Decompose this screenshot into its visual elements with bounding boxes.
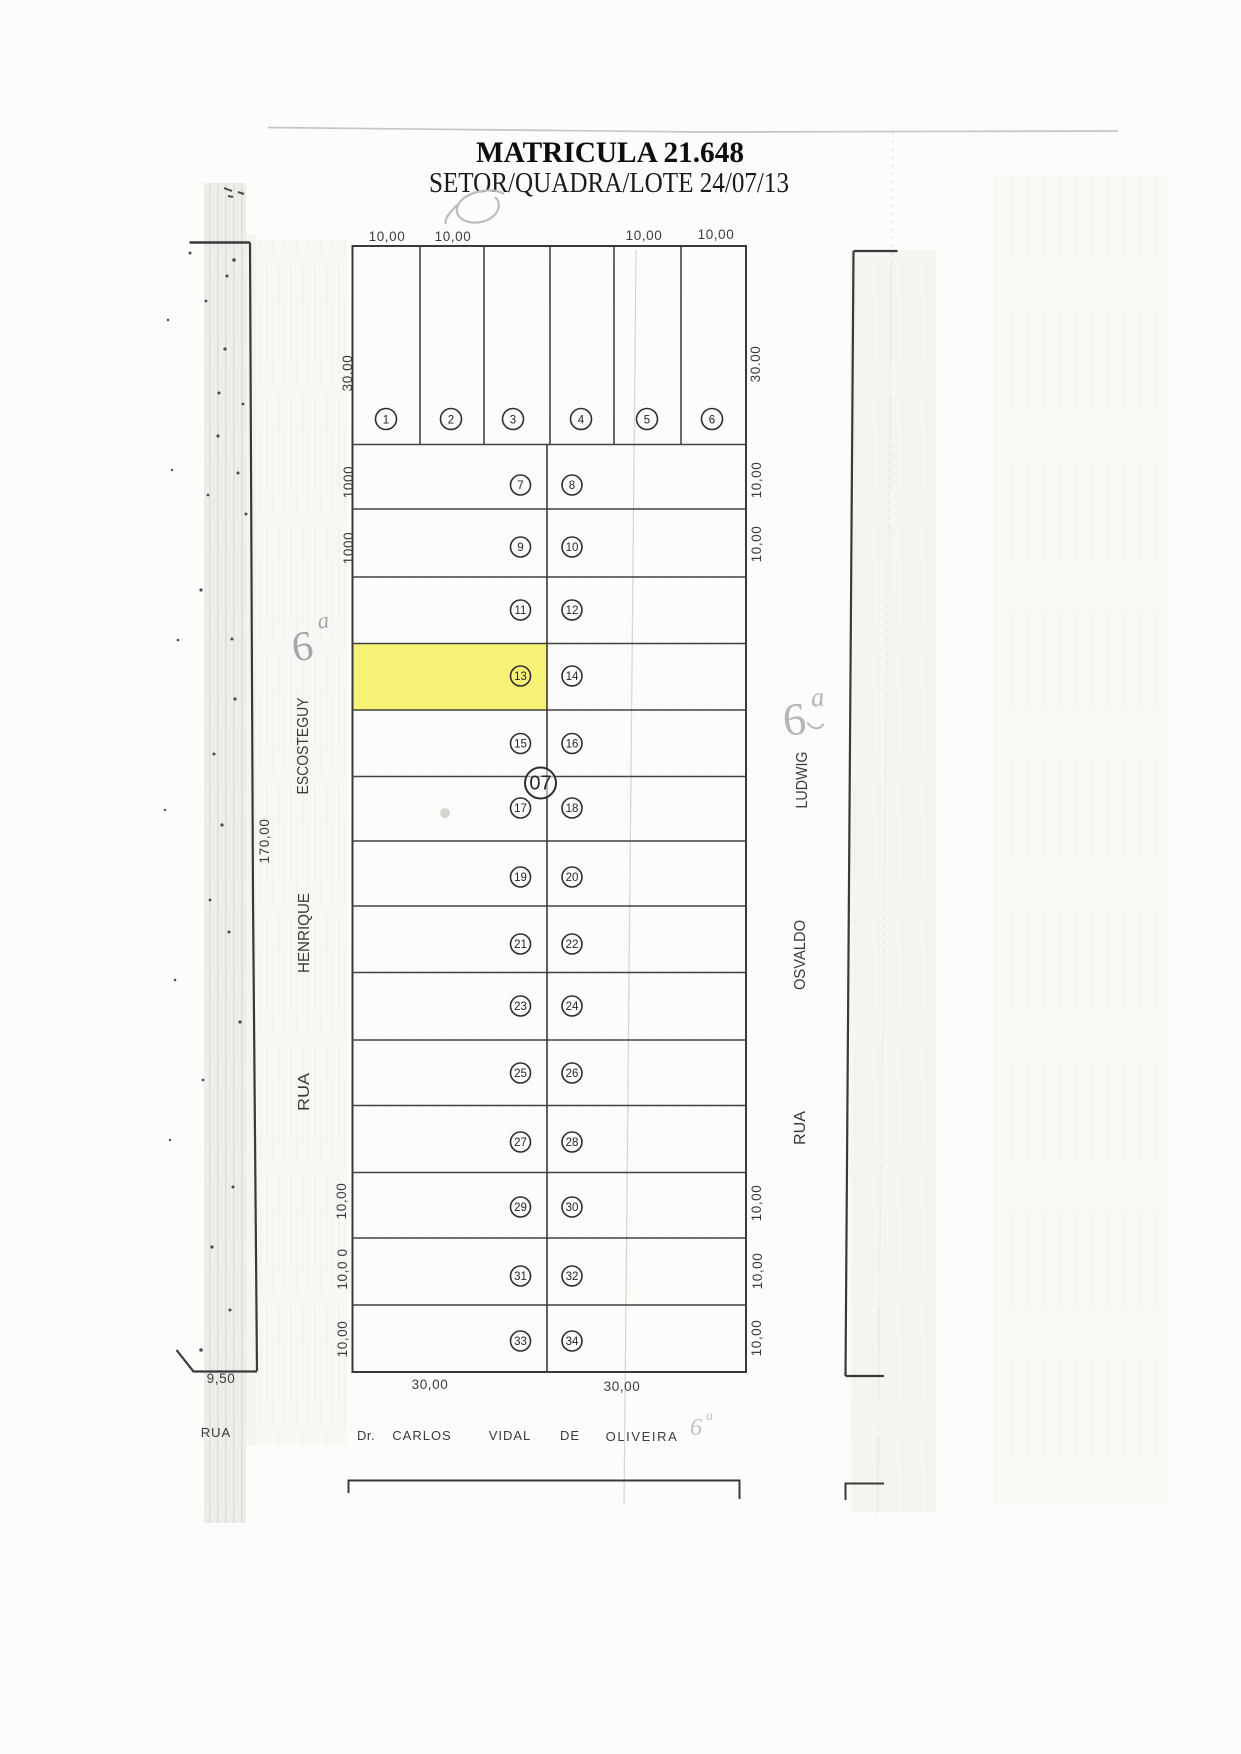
svg-text:34: 34: [566, 1336, 579, 1348]
svg-text:a: a: [706, 1409, 713, 1424]
svg-text:13: 13: [514, 671, 527, 683]
svg-text:10,00: 10,00: [750, 1253, 765, 1290]
svg-text:18: 18: [566, 803, 579, 815]
svg-text:10,00: 10,00: [749, 526, 764, 563]
svg-text:26: 26: [566, 1068, 579, 1080]
svg-text:15: 15: [514, 739, 527, 751]
svg-text:9: 9: [517, 542, 523, 554]
svg-text:5: 5: [644, 415, 650, 427]
svg-text:19: 19: [514, 872, 527, 884]
svg-text:3: 3: [510, 415, 516, 427]
svg-text:170,00: 170,00: [257, 819, 272, 864]
svg-text:30,00: 30,00: [604, 1379, 641, 1394]
svg-text:31: 31: [514, 1271, 527, 1283]
svg-text:28: 28: [566, 1137, 579, 1149]
svg-text:30.00: 30.00: [340, 355, 355, 392]
svg-text:OSVALDO: OSVALDO: [792, 920, 809, 990]
svg-text:12: 12: [566, 605, 579, 617]
svg-text:HENRIQUE: HENRIQUE: [296, 893, 313, 973]
svg-text:SETOR/QUADRA/LOTE 24/07/13: SETOR/QUADRA/LOTE 24/07/13: [429, 167, 789, 199]
svg-text:25: 25: [514, 1068, 527, 1080]
svg-text:6: 6: [709, 415, 715, 427]
svg-text:17: 17: [514, 803, 527, 815]
svg-text:LUDWIG: LUDWIG: [794, 752, 811, 809]
svg-text:21: 21: [514, 939, 527, 951]
svg-text:07: 07: [529, 773, 551, 795]
svg-text:RUA: RUA: [201, 1425, 231, 1440]
svg-text:10,00: 10,00: [335, 1321, 350, 1358]
svg-text:10,00: 10,00: [698, 227, 735, 242]
svg-text:23: 23: [514, 1001, 527, 1013]
svg-text:ESCOSTEGUY: ESCOSTEGUY: [295, 697, 312, 794]
svg-text:29: 29: [514, 1202, 527, 1214]
svg-text:24: 24: [566, 1001, 579, 1013]
svg-text:11: 11: [515, 605, 527, 617]
svg-text:20: 20: [566, 872, 579, 884]
svg-text:OLIVEIRA: OLIVEIRA: [606, 1429, 679, 1444]
svg-text:9,50: 9,50: [207, 1371, 236, 1386]
svg-text:10,00: 10,00: [749, 1320, 764, 1357]
svg-text:16: 16: [566, 739, 579, 751]
svg-text:10: 10: [566, 542, 579, 554]
svg-text:DE: DE: [560, 1428, 580, 1443]
svg-text:Dr.: Dr.: [357, 1428, 375, 1443]
svg-text:10,00: 10,00: [626, 228, 663, 243]
svg-text:VIDAL: VIDAL: [489, 1428, 532, 1443]
svg-text:CARLOS: CARLOS: [392, 1428, 451, 1443]
svg-text:27: 27: [514, 1137, 527, 1149]
svg-text:8: 8: [569, 480, 575, 492]
svg-text:4: 4: [578, 415, 585, 427]
svg-text:1000: 1000: [341, 532, 356, 564]
svg-text:6: 6: [780, 693, 808, 746]
svg-text:10,00: 10,00: [749, 1185, 764, 1222]
svg-text:RUA: RUA: [792, 1111, 809, 1145]
svg-text:2: 2: [448, 415, 454, 427]
svg-text:1000: 1000: [341, 466, 356, 498]
svg-text:10,00: 10,00: [334, 1183, 349, 1220]
svg-text:7: 7: [517, 480, 523, 492]
svg-text:10,00: 10,00: [435, 229, 472, 244]
svg-text:33: 33: [514, 1336, 527, 1348]
svg-text:14: 14: [566, 671, 579, 683]
svg-text:30.00: 30.00: [748, 346, 763, 383]
svg-text:32: 32: [566, 1271, 579, 1283]
svg-text:30: 30: [566, 1202, 579, 1214]
svg-text:10,00: 10,00: [369, 229, 406, 244]
svg-text:10,00: 10,00: [749, 462, 764, 499]
svg-text:10,0 0: 10,0 0: [335, 1248, 350, 1289]
svg-text:1: 1: [383, 415, 389, 427]
svg-text:30,00: 30,00: [412, 1377, 449, 1392]
svg-text:MATRICULA 21.648: MATRICULA 21.648: [476, 136, 744, 169]
svg-text:RUA: RUA: [296, 1073, 313, 1111]
svg-text:22: 22: [566, 939, 579, 951]
svg-text:a: a: [809, 682, 826, 713]
svg-text:6: 6: [690, 1415, 702, 1441]
